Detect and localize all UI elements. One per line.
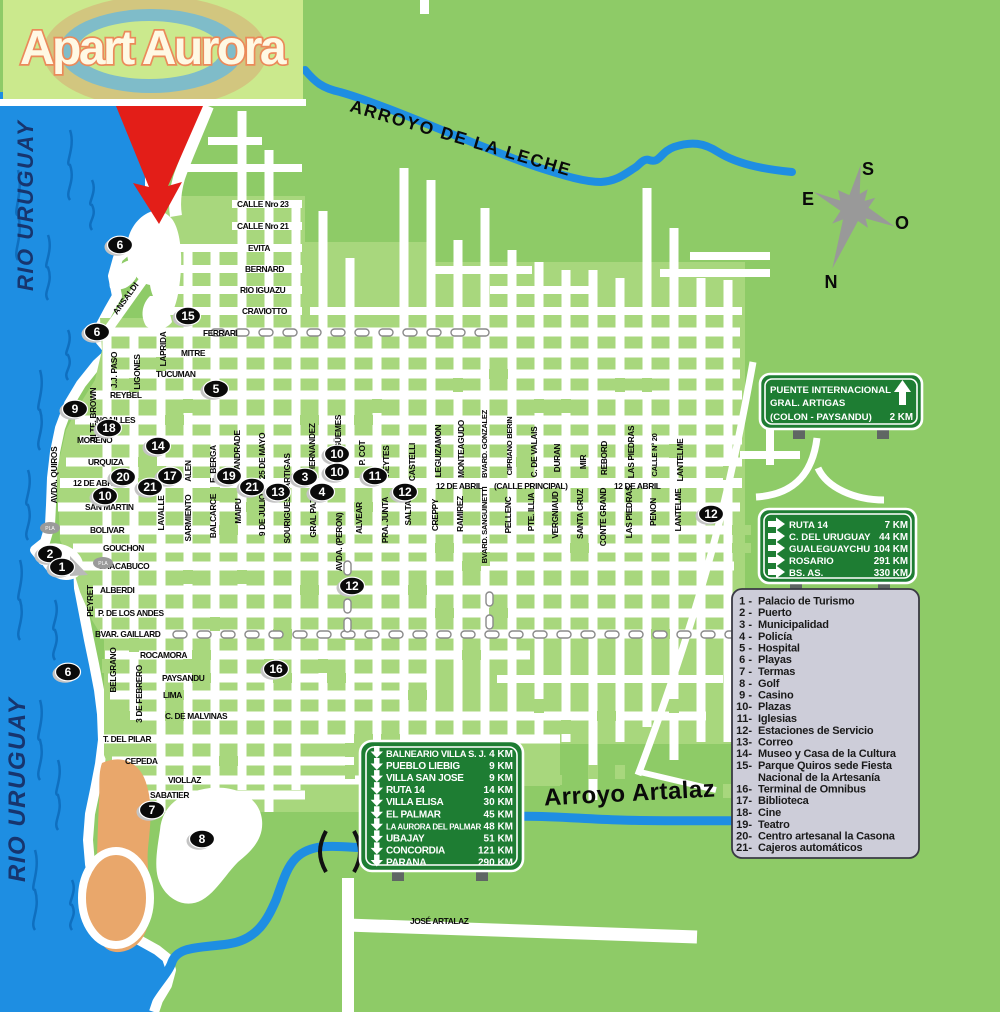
svg-text:9 -: 9 - [739, 690, 752, 702]
svg-text:S: S [862, 159, 874, 179]
svg-text:3: 3 [302, 470, 309, 484]
svg-text:ALBERDI: ALBERDI [100, 585, 134, 595]
svg-text:UBAJAY: UBAJAY [386, 833, 425, 844]
svg-text:LANTELME: LANTELME [673, 488, 683, 532]
svg-text:Iglesias: Iglesias [758, 713, 797, 725]
svg-text:44 KM: 44 KM [879, 532, 908, 543]
svg-text:121 KM: 121 KM [478, 845, 513, 856]
svg-text:MIR: MIR [578, 455, 588, 470]
svg-text:Parque Quiros sede Fiesta: Parque Quiros sede Fiesta [758, 760, 893, 772]
svg-text:CONCORDIA: CONCORDIA [386, 845, 445, 856]
svg-text:VILLA SAN JOSE: VILLA SAN JOSE [386, 773, 464, 784]
svg-text:12: 12 [398, 485, 412, 499]
svg-text:JOSÉ ARTALAZ: JOSÉ ARTALAZ [410, 915, 469, 926]
svg-text:AVDA. QUIROS: AVDA. QUIROS [49, 446, 59, 503]
svg-text:21: 21 [245, 480, 259, 494]
svg-text:7 -: 7 - [739, 666, 752, 678]
svg-text:Termas: Termas [758, 666, 795, 678]
svg-text:14-: 14- [736, 748, 752, 760]
svg-text:Municipalidad: Municipalidad [758, 619, 829, 631]
svg-text:BELGRANO: BELGRANO [108, 647, 118, 693]
svg-text:SABATIER: SABATIER [150, 790, 189, 800]
svg-text:PUEBLO LIEBIG: PUEBLO LIEBIG [386, 761, 460, 772]
svg-text:10: 10 [98, 489, 112, 503]
svg-text:BVARD. GONZALEZ: BVARD. GONZALEZ [480, 409, 489, 478]
svg-text:Hospital: Hospital [758, 643, 800, 655]
svg-text:EL PALMAR: EL PALMAR [386, 809, 442, 820]
svg-text:Golf: Golf [758, 678, 780, 690]
svg-text:7 KM: 7 KM [885, 520, 908, 531]
svg-text:AVDA. (PERON): AVDA. (PERON) [334, 512, 344, 571]
svg-text:T. DEL PILAR: T. DEL PILAR [103, 734, 151, 744]
svg-text:CASTELLI: CASTELLI [407, 443, 417, 481]
svg-text:3 -: 3 - [739, 619, 752, 631]
svg-text:CEPEDA: CEPEDA [125, 756, 158, 766]
svg-text:4 -: 4 - [739, 631, 752, 643]
svg-text:11: 11 [369, 469, 382, 483]
svg-text:LAPRIDA: LAPRIDA [158, 331, 168, 366]
svg-text:290 KM: 290 KM [478, 857, 513, 868]
svg-text:LEGUIZAMON: LEGUIZAMON [433, 424, 443, 477]
svg-text:17-: 17- [736, 795, 752, 807]
svg-text:REBORD: REBORD [599, 441, 609, 475]
svg-text:C. DEL URUGUAY: C. DEL URUGUAY [789, 532, 871, 543]
svg-text:(COLON - PAYSANDU): (COLON - PAYSANDU) [770, 412, 872, 423]
svg-text:Biblioteca: Biblioteca [758, 795, 810, 807]
svg-text:Palacio de Turismo: Palacio de Turismo [758, 596, 855, 608]
svg-text:CALLE N° 20: CALLE N° 20 [650, 433, 659, 476]
svg-text:GRAL PAZ: GRAL PAZ [308, 498, 318, 537]
svg-text:RAMIREZ: RAMIREZ [455, 496, 465, 532]
svg-text:16: 16 [269, 662, 283, 676]
svg-text:PAYSANDU: PAYSANDU [162, 673, 205, 683]
svg-text:8: 8 [199, 832, 206, 846]
svg-text:11-: 11- [737, 713, 753, 725]
svg-text:O: O [895, 213, 909, 233]
svg-text:ANDRADE: ANDRADE [232, 430, 242, 470]
svg-text:12: 12 [704, 507, 718, 521]
svg-text:18-: 18- [736, 807, 752, 819]
svg-text:Nacional de la Artesanía: Nacional de la Artesanía [758, 772, 881, 784]
svg-text:Cine: Cine [758, 807, 781, 819]
svg-text:TUCUMAN: TUCUMAN [156, 369, 196, 379]
svg-text:RIO URUGUAY: RIO URUGUAY [13, 119, 38, 291]
svg-text:51 KM: 51 KM [484, 833, 513, 844]
svg-text:5 -: 5 - [739, 643, 752, 655]
svg-text:16-: 16- [736, 784, 752, 796]
svg-text:BOLIVAR: BOLIVAR [90, 525, 125, 535]
svg-text:LANTELME: LANTELME [675, 438, 685, 482]
svg-text:14: 14 [151, 439, 165, 453]
svg-text:12 DE ABRIL: 12 DE ABRIL [436, 481, 483, 491]
svg-text:CALLE Nro 21: CALLE Nro 21 [237, 221, 289, 231]
svg-text:9 KM: 9 KM [489, 773, 513, 784]
svg-text:BALCARCE: BALCARCE [208, 493, 218, 538]
svg-text:Estaciones de Servicio: Estaciones de Servicio [758, 725, 874, 737]
svg-text:SOURIGUES: SOURIGUES [282, 496, 292, 544]
svg-text:P. COT: P. COT [357, 440, 367, 465]
svg-text:EVITA: EVITA [248, 243, 270, 253]
svg-text:VIOLLAZ: VIOLLAZ [168, 775, 201, 785]
svg-text:CREPPY: CREPPY [430, 498, 440, 531]
svg-text:BVAR. GAILLARD: BVAR. GAILLARD [95, 629, 161, 639]
svg-text:330 KM: 330 KM [874, 568, 908, 579]
svg-text:PUENTE INTERNACIONAL: PUENTE INTERNACIONAL [770, 385, 891, 396]
svg-text:RUTA 14: RUTA 14 [789, 520, 829, 531]
svg-text:BERNARD: BERNARD [245, 264, 284, 274]
svg-text:LAVALLE: LAVALLE [156, 495, 166, 531]
svg-text:21: 21 [143, 480, 157, 494]
svg-text:12: 12 [345, 579, 359, 593]
svg-text:PLA: PLA [98, 561, 108, 567]
svg-text:E: E [802, 189, 814, 209]
svg-text:104 KM: 104 KM [874, 544, 908, 555]
svg-text:ROSARIO: ROSARIO [789, 556, 834, 567]
svg-text:GÜEMES: GÜEMES [333, 414, 343, 449]
svg-text:13-: 13- [736, 737, 752, 749]
svg-text:ALVEAR: ALVEAR [354, 502, 364, 534]
svg-text:RUTA 14: RUTA 14 [386, 785, 425, 796]
svg-text:GRAL. ARTIGAS: GRAL. ARTIGAS [770, 398, 846, 409]
svg-text:Museo y Casa de la Cultura: Museo y Casa de la Cultura [758, 748, 897, 760]
svg-text:ARTIGAS: ARTIGAS [282, 453, 292, 489]
svg-text:Apart Aurora: Apart Aurora [20, 22, 287, 75]
svg-text:12 DE ABRIL: 12 DE ABRIL [614, 481, 661, 491]
svg-text:URQUIZA: URQUIZA [88, 457, 124, 467]
svg-text:14 KM: 14 KM [484, 785, 513, 796]
svg-text:20-: 20- [736, 831, 752, 843]
svg-text:C. DE VALAIS: C. DE VALAIS [529, 426, 539, 477]
svg-text:45 KM: 45 KM [484, 809, 513, 820]
svg-text:Teatro: Teatro [758, 819, 790, 831]
svg-text:MAIPU: MAIPU [233, 498, 243, 524]
svg-text:CRAVIOTTO: CRAVIOTTO [242, 306, 288, 316]
svg-text:Plazas: Plazas [758, 701, 791, 713]
svg-text:PLA: PLA [45, 526, 55, 532]
svg-text:ROCAMORA: ROCAMORA [140, 650, 187, 660]
svg-text:DURAN: DURAN [552, 443, 562, 472]
svg-text:VERGNIAUD: VERGNIAUD [550, 491, 560, 538]
svg-text:10: 10 [330, 465, 344, 479]
svg-text:PTE. ILLIA: PTE. ILLIA [526, 492, 536, 531]
svg-text:MONTEAGUDO: MONTEAGUDO [456, 419, 466, 478]
svg-text:PEYRET: PEYRET [85, 585, 95, 617]
svg-text:5: 5 [213, 382, 220, 396]
svg-text:6 -: 6 - [739, 654, 752, 666]
svg-text:25 DE MAYO: 25 DE MAYO [257, 432, 267, 479]
svg-text:19-: 19- [736, 819, 752, 831]
svg-text:Cajeros automáticos: Cajeros automáticos [758, 842, 862, 854]
svg-text:9: 9 [72, 402, 79, 416]
svg-text:LAS PIEDRAS: LAS PIEDRAS [626, 425, 636, 478]
svg-text:GOUCHON: GOUCHON [103, 543, 144, 553]
svg-text:VILLA ELISA: VILLA ELISA [386, 797, 444, 808]
svg-text:10: 10 [330, 447, 344, 461]
svg-text:CALLE Nro 23: CALLE Nro 23 [237, 199, 289, 209]
svg-text:Casino: Casino [758, 690, 794, 702]
svg-text:19: 19 [222, 469, 236, 483]
svg-text:C. DE MALVINAS: C. DE MALVINAS [165, 711, 228, 721]
svg-text:7: 7 [149, 803, 156, 817]
svg-text:15: 15 [181, 309, 195, 323]
svg-text:(CALLE PRINCIPAL): (CALLE PRINCIPAL) [494, 481, 568, 491]
svg-text:LAS PIEDRAS: LAS PIEDRAS [624, 485, 634, 538]
svg-text:4 KM: 4 KM [489, 749, 513, 760]
svg-text:LA AURORA DEL PALMAR: LA AURORA DEL PALMAR [386, 822, 482, 831]
svg-text:18: 18 [102, 421, 116, 435]
svg-text:6: 6 [94, 325, 101, 339]
svg-text:30 KM: 30 KM [484, 797, 513, 808]
svg-text:2: 2 [47, 547, 54, 561]
svg-text:ALEN: ALEN [183, 460, 193, 482]
svg-text:10-: 10- [736, 701, 752, 713]
svg-text:6: 6 [117, 238, 124, 252]
svg-text:RIO URUGUAY: RIO URUGUAY [4, 696, 31, 882]
svg-text:PARANA: PARANA [386, 857, 426, 868]
svg-text:PRA. JUNTA: PRA. JUNTA [380, 497, 390, 543]
svg-text:SARMIENTO: SARMIENTO [183, 494, 193, 542]
svg-text:HERNANDEZ: HERNANDEZ [307, 423, 317, 473]
svg-text:N: N [825, 272, 838, 292]
svg-text:20: 20 [116, 470, 130, 484]
svg-text:2 KM: 2 KM [890, 412, 913, 423]
svg-text:9 KM: 9 KM [489, 761, 513, 772]
svg-text:12-: 12- [736, 725, 752, 737]
svg-text:2 -: 2 - [739, 607, 752, 619]
svg-text:Playas: Playas [758, 654, 792, 666]
svg-text:13: 13 [271, 485, 285, 499]
svg-text:4: 4 [319, 485, 326, 499]
svg-text:3 DE FEBRERO: 3 DE FEBRERO [134, 664, 144, 723]
svg-text:LIGONES: LIGONES [132, 354, 142, 390]
svg-text:Correo: Correo [758, 737, 793, 749]
svg-text:PELLENC: PELLENC [503, 496, 513, 533]
svg-text:J.J. PASO: J.J. PASO [109, 351, 119, 388]
svg-text:CIPRIANO BERIN: CIPRIANO BERIN [505, 417, 514, 476]
svg-text:FERRARI: FERRARI [203, 328, 237, 338]
svg-text:BVARD. SANGUINETTI: BVARD. SANGUINETTI [480, 486, 489, 563]
svg-text:RIO IGUAZU: RIO IGUAZU [240, 285, 286, 295]
svg-text:17: 17 [163, 469, 177, 483]
svg-text:Policía: Policía [758, 631, 793, 643]
svg-text:48 KM: 48 KM [484, 821, 513, 832]
svg-text:P. DE LOS ANDES: P. DE LOS ANDES [98, 608, 164, 618]
svg-text:CONTE GRAND: CONTE GRAND [598, 487, 608, 546]
svg-text:291 KM: 291 KM [874, 556, 908, 567]
svg-text:6: 6 [65, 665, 72, 679]
svg-text:Centro artesanal la Casona: Centro artesanal la Casona [758, 831, 896, 843]
svg-text:SANTA CRUZ: SANTA CRUZ [575, 489, 585, 539]
svg-text:BS. AS.: BS. AS. [789, 568, 823, 579]
svg-text:LIMA: LIMA [163, 690, 182, 700]
svg-text:PENON: PENON [648, 498, 658, 526]
svg-text:Puerto: Puerto [758, 607, 792, 619]
svg-text:1: 1 [59, 560, 66, 574]
svg-text:BALNEARIO VILLA S. J.: BALNEARIO VILLA S. J. [386, 749, 486, 759]
svg-text:21-: 21- [736, 842, 752, 854]
svg-text:GUALEGUAYCHU: GUALEGUAYCHU [789, 544, 870, 555]
svg-text:15-: 15- [736, 760, 752, 772]
svg-text:1 -: 1 - [739, 596, 752, 608]
svg-text:MITRE: MITRE [181, 348, 206, 358]
svg-text:SALTA: SALTA [403, 500, 413, 525]
svg-text:8 -: 8 - [739, 678, 752, 690]
svg-text:Terminal de Omnibus: Terminal de Omnibus [758, 784, 866, 796]
svg-text:REYBEL: REYBEL [110, 390, 142, 400]
